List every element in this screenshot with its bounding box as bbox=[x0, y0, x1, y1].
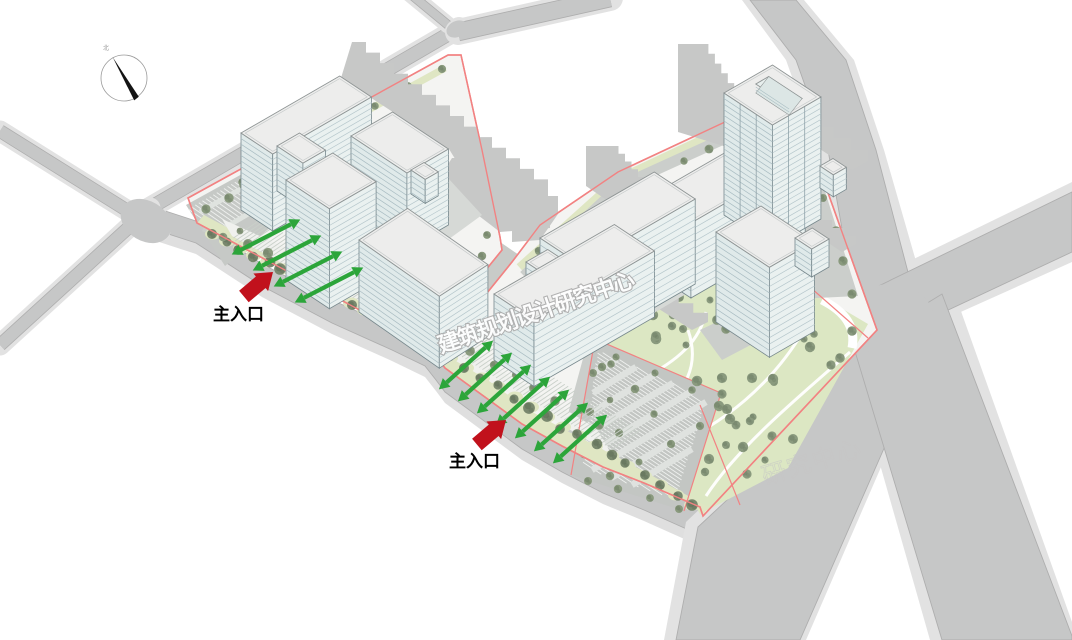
svg-text:主入口: 主入口 bbox=[213, 304, 264, 324]
svg-text:主入口: 主入口 bbox=[449, 451, 500, 471]
svg-text:北: 北 bbox=[103, 44, 109, 52]
